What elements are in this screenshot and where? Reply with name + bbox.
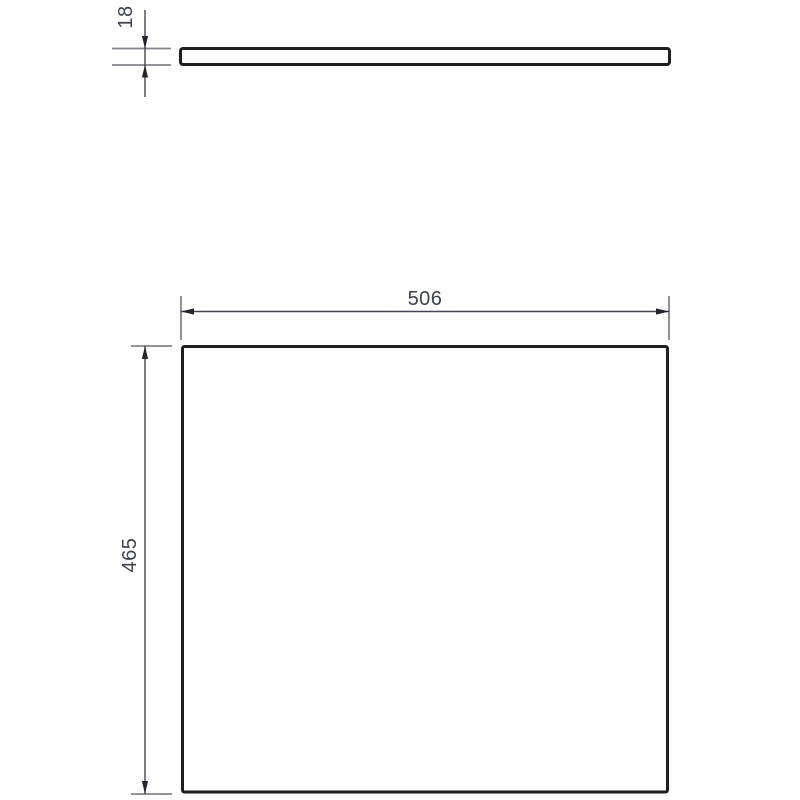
arrowhead-left-icon — [181, 308, 194, 314]
width-label: 506 — [408, 288, 443, 310]
thickness-dimension: 18 — [112, 5, 171, 97]
panel-side-profile — [181, 49, 670, 65]
thickness-label: 18 — [115, 5, 137, 28]
arrowhead-up-icon — [142, 65, 148, 78]
technical-drawing-canvas: 18 506 465 — [0, 0, 800, 800]
top-view: 18 — [112, 5, 670, 97]
front-view: 506 465 — [119, 288, 669, 794]
arrowhead-up-icon — [142, 346, 148, 359]
arrowhead-down-icon — [142, 36, 148, 49]
panel-front-face — [183, 347, 668, 793]
height-dimension: 465 — [119, 346, 172, 794]
arrowhead-right-icon — [656, 308, 669, 314]
arrowhead-down-icon — [142, 781, 148, 794]
width-dimension: 506 — [181, 288, 669, 340]
height-label: 465 — [119, 538, 141, 573]
